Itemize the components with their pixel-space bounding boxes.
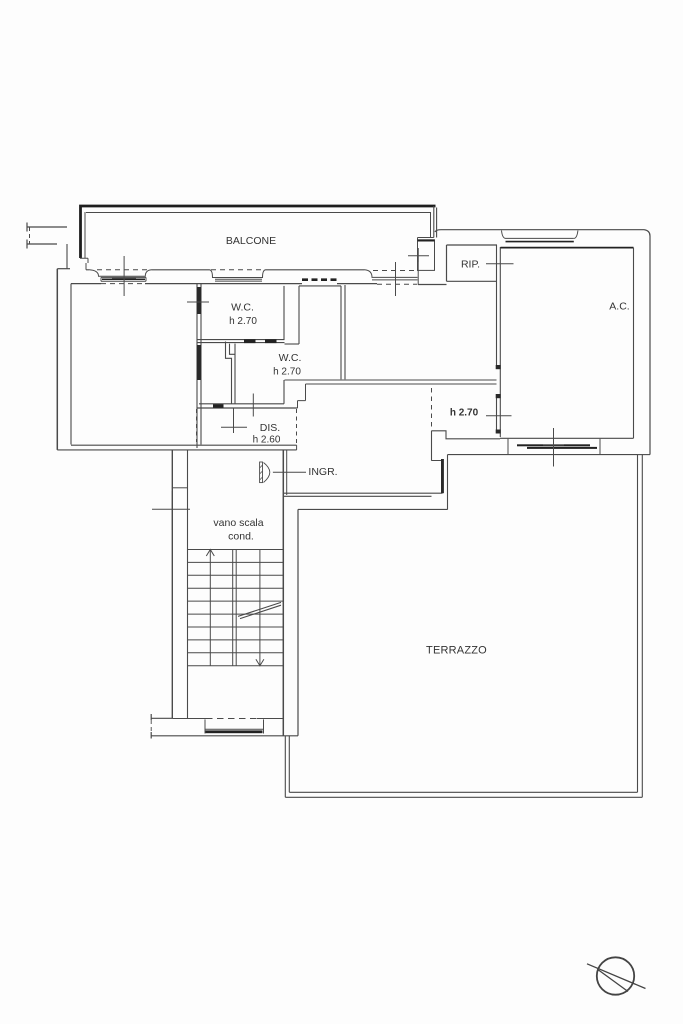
svg-text:h 2.60: h 2.60 <box>253 435 281 446</box>
svg-text:W.C.: W.C. <box>279 352 302 364</box>
svg-text:cond.: cond. <box>228 531 254 543</box>
svg-text:h 2.70: h 2.70 <box>273 367 301 378</box>
svg-text:BALCONE: BALCONE <box>226 235 276 247</box>
svg-text:TERRAZZO: TERRAZZO <box>426 645 487 657</box>
svg-text:DIS.: DIS. <box>260 422 280 434</box>
svg-text:h 2.70: h 2.70 <box>450 408 479 419</box>
svg-text:INGR.: INGR. <box>308 466 337 478</box>
svg-text:vano scala: vano scala <box>213 517 263 529</box>
svg-text:h 2.70: h 2.70 <box>229 316 257 327</box>
svg-text:W.C.: W.C. <box>231 302 254 314</box>
svg-text:RIP.: RIP. <box>461 259 480 271</box>
svg-text:A.C.: A.C. <box>609 301 629 313</box>
